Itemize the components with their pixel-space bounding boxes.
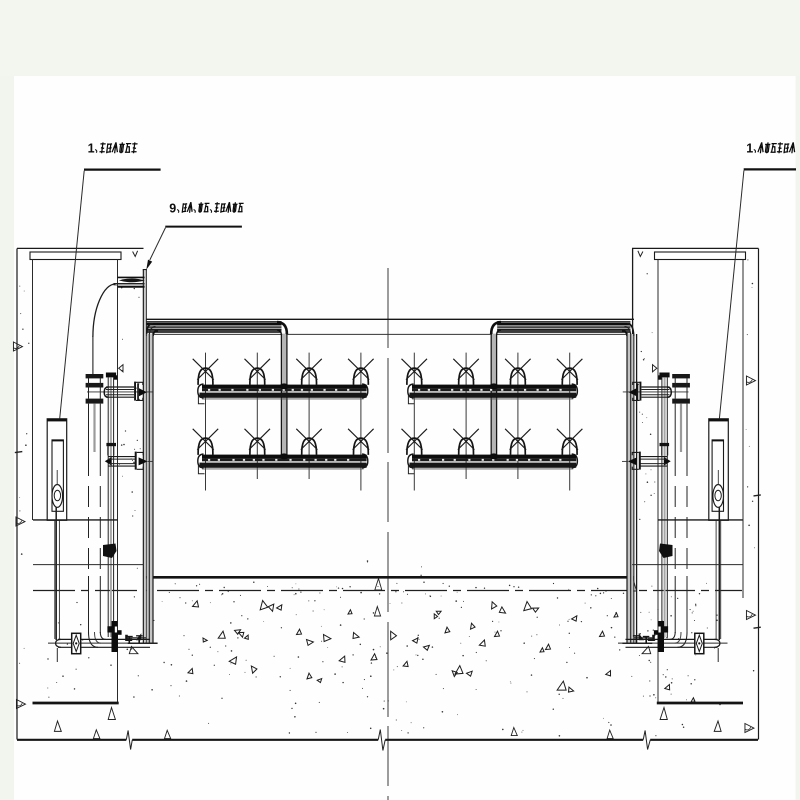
svg-text:9: 9 xyxy=(169,202,176,216)
svg-text:1: 1 xyxy=(746,141,753,155)
svg-text:1: 1 xyxy=(88,141,95,155)
